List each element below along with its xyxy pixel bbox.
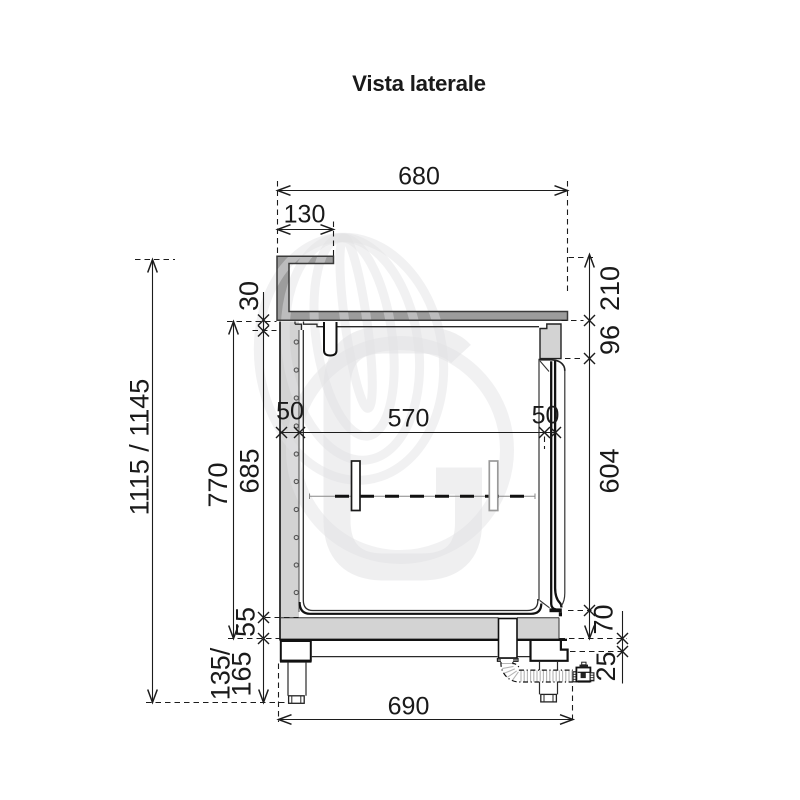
svg-text:25: 25 — [591, 651, 621, 681]
svg-text:70: 70 — [589, 604, 619, 634]
svg-text:570: 570 — [388, 405, 430, 433]
svg-text:680: 680 — [398, 163, 440, 191]
svg-text:Vista laterale: Vista laterale — [352, 71, 486, 96]
svg-text:770: 770 — [203, 462, 233, 507]
svg-text:55: 55 — [231, 607, 261, 637]
svg-text:30: 30 — [234, 281, 264, 311]
svg-text:604: 604 — [595, 448, 625, 493]
svg-text:50: 50 — [276, 398, 304, 426]
svg-text:50: 50 — [532, 402, 560, 430]
svg-text:685: 685 — [235, 448, 265, 493]
svg-text:210: 210 — [595, 266, 625, 311]
svg-text:165: 165 — [227, 651, 257, 696]
svg-text:96: 96 — [595, 325, 625, 355]
svg-text:1115 / 1145: 1115 / 1145 — [125, 379, 155, 516]
svg-text:690: 690 — [388, 693, 430, 721]
svg-text:130: 130 — [284, 201, 326, 229]
